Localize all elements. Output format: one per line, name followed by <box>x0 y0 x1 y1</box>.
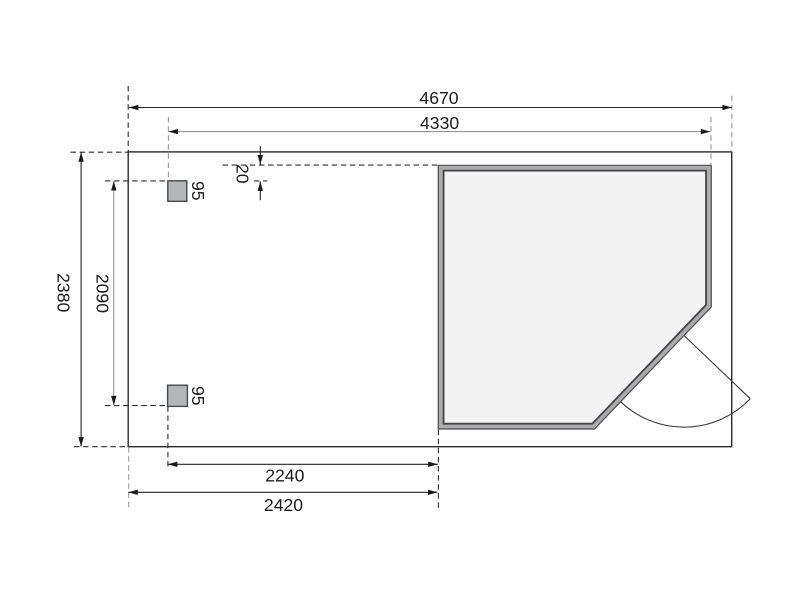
svg-text:4330: 4330 <box>420 113 459 133</box>
svg-text:2240: 2240 <box>265 465 304 485</box>
svg-text:4670: 4670 <box>419 88 458 108</box>
svg-text:2380: 2380 <box>54 273 74 312</box>
svg-text:2420: 2420 <box>264 495 303 515</box>
svg-text:2090: 2090 <box>93 274 113 313</box>
svg-text:20: 20 <box>233 164 253 184</box>
svg-text:95: 95 <box>188 181 208 201</box>
svg-text:95: 95 <box>188 386 208 406</box>
